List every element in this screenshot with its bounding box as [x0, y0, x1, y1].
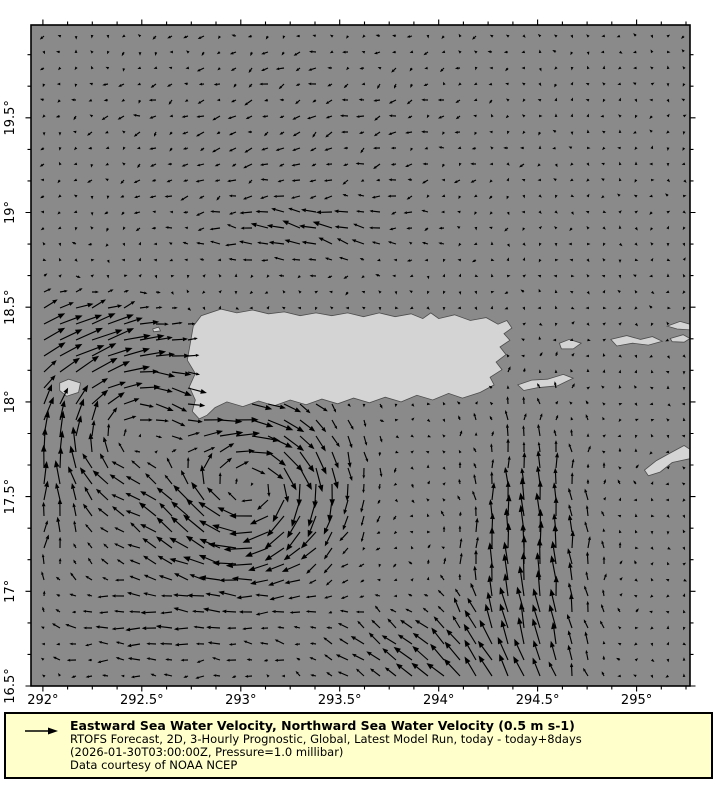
x-tick-label: 295° — [621, 693, 652, 708]
legend-text: Eastward Sea Water Velocity, Northward S… — [70, 719, 582, 772]
y-tick-label: 17.5° — [3, 479, 18, 514]
legend-box: Eastward Sea Water Velocity, Northward S… — [4, 712, 713, 779]
x-tick-label: 293.5° — [318, 693, 362, 708]
y-tick-label: 19.5° — [3, 100, 18, 135]
x-axis-labels: 292°292.5°293°293.5°294°294.5°295° — [27, 693, 652, 708]
x-tick-label: 293° — [225, 693, 256, 708]
y-tick-label: 16.5° — [3, 668, 18, 703]
legend-courtesy: Data courtesy of NOAA NCEP — [70, 759, 582, 772]
x-tick-label: 292° — [27, 693, 58, 708]
y-tick-label: 17° — [3, 580, 18, 603]
y-tick-label: 18° — [3, 390, 18, 413]
y-axis-labels: 16.5°17°17.5°18°18.5°19°19.5° — [3, 100, 18, 704]
figure: 292°292.5°293°293.5°294°294.5°295°16.5°1… — [0, 0, 720, 800]
y-tick-label: 18.5° — [3, 289, 18, 324]
x-tick-label: 292.5° — [120, 693, 164, 708]
legend-title: Eastward Sea Water Velocity, Northward S… — [70, 719, 582, 733]
reference-arrow-icon — [24, 726, 60, 736]
velocity-map-svg: 292°292.5°293°293.5°294°294.5°295°16.5°1… — [0, 0, 720, 710]
x-tick-label: 294.5° — [516, 693, 560, 708]
y-tick-label: 19° — [3, 201, 18, 224]
x-tick-label: 294° — [423, 693, 454, 708]
